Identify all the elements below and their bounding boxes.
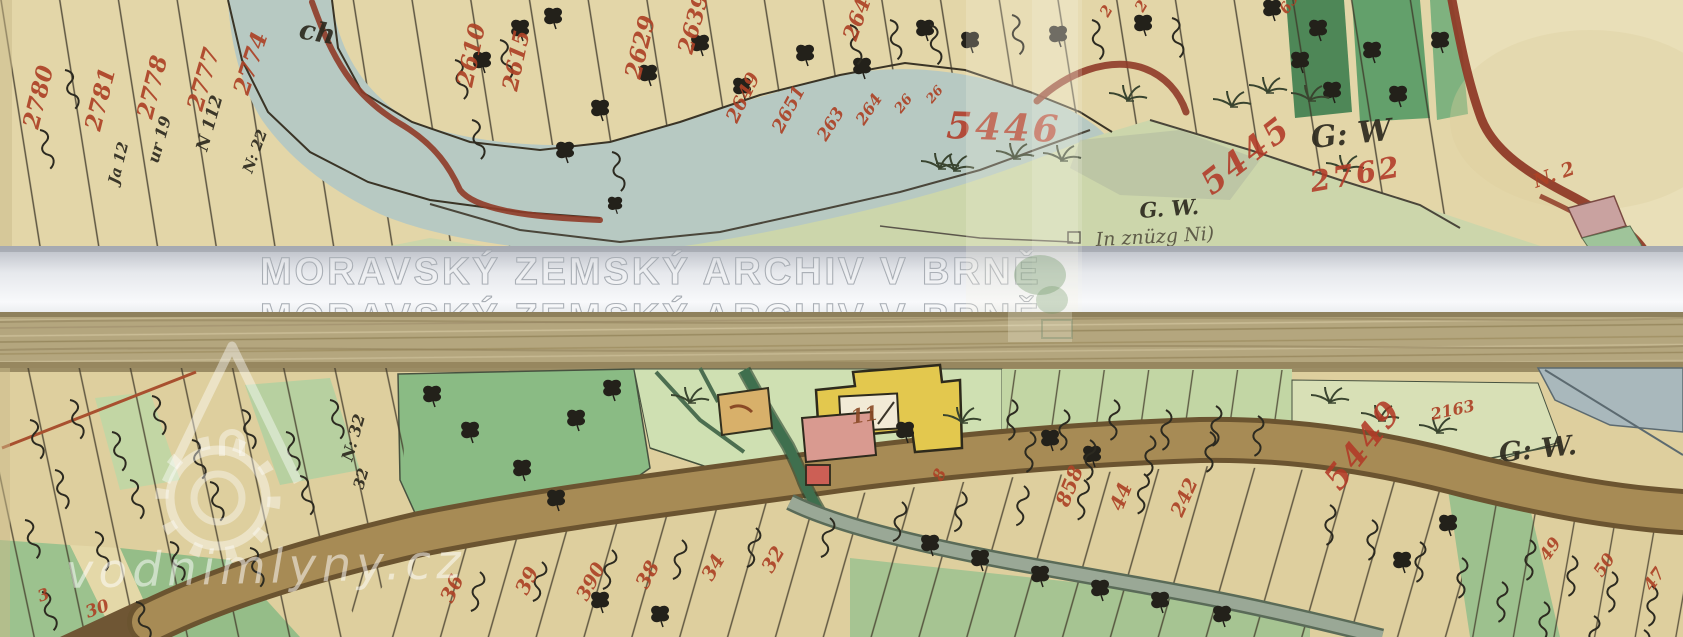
gw-label-small: G. W. <box>1139 194 1200 223</box>
scanned-cadastral-map-image: 2780278127782777277426102615262926392646… <box>0 0 1683 637</box>
corner-script: ch <box>297 14 338 51</box>
building-number-label: 11 <box>849 400 881 428</box>
upper-map-page: 2780278127782777277426102615262926392646… <box>0 0 1683 256</box>
binding-thread <box>0 312 1683 370</box>
thread-edge <box>0 312 1683 317</box>
site-watermark-text: vodnimlyny.cz <box>65 535 467 600</box>
page-edge-shade <box>0 368 10 637</box>
building-red-small <box>806 465 830 485</box>
page-edge-shade <box>0 0 12 252</box>
archive-watermark-text: MORAVSKÝ ZEMSKÝ ARCHIV V BRNĚ <box>260 249 1042 293</box>
building-plot-tan <box>718 388 772 435</box>
lower-map-page: 36393903834328858442424950473032163 N: 3… <box>0 365 1683 637</box>
thread-edge <box>0 362 1683 368</box>
